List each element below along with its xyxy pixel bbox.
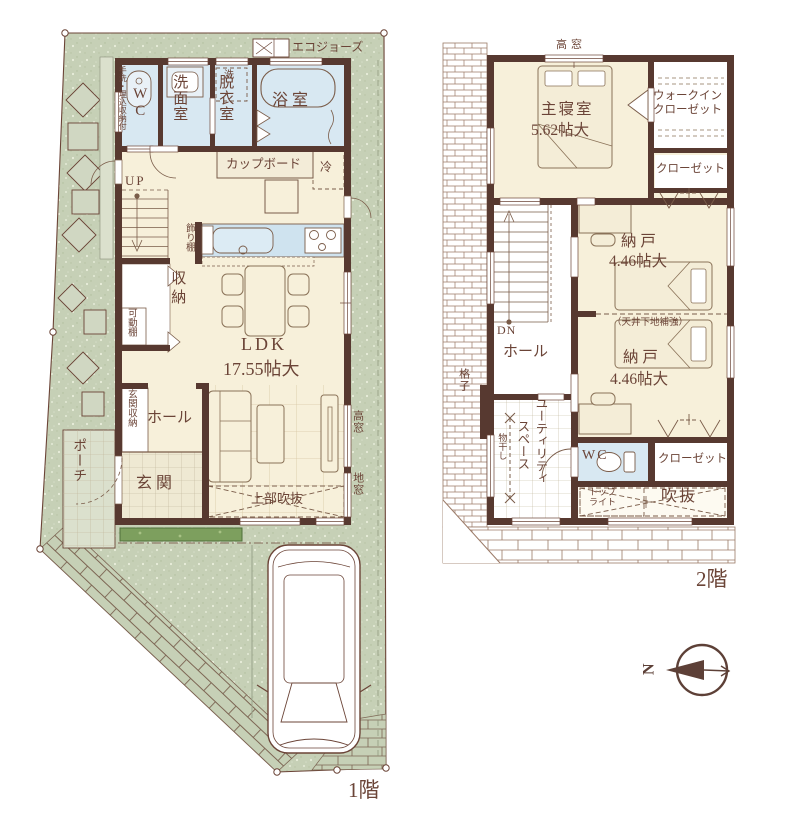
hedge xyxy=(120,528,242,541)
label-void-2f: 吹抜 xyxy=(661,488,697,506)
label-toplight-line1: トップ xyxy=(589,487,616,497)
label-nando1: 納 戸 xyxy=(621,233,656,251)
label-wic-line2: クローゼット xyxy=(653,104,722,117)
label-master: 主寝室 xyxy=(541,101,594,119)
coffee-table xyxy=(257,405,284,463)
label-jimado: 地窓 xyxy=(351,472,364,496)
car-icon xyxy=(257,545,371,753)
label-wc-note: 手洗・埋込収納付 xyxy=(118,66,127,130)
water-heater-icon xyxy=(253,39,289,57)
label-fukinuke-1f: 上部吹抜 xyxy=(251,492,303,507)
label-kazaridana: 飾り棚 xyxy=(183,223,194,252)
side-fence xyxy=(100,57,113,259)
label-porch: ポーチ xyxy=(70,438,86,483)
label-cupboard: カップボード xyxy=(226,157,301,171)
label-datsui: 脱衣室 xyxy=(216,74,233,122)
label-floor2-title: 2階 xyxy=(696,567,728,591)
label-senmen: 洗面室 xyxy=(170,74,187,122)
label-utility-line2: スペース xyxy=(515,420,529,470)
compass-icon xyxy=(666,645,729,695)
label-koshi: 格子 xyxy=(457,368,470,392)
label-bath: 浴 室 xyxy=(272,92,308,110)
label-floor1-title: 1階 xyxy=(348,778,380,802)
label-shuno: 収納 xyxy=(168,270,185,308)
label-nando2-size: 4.46帖大 xyxy=(610,371,668,389)
label-nando1-size: 4.46帖大 xyxy=(609,253,667,271)
label-takamado-1f: 高窓 xyxy=(351,410,364,434)
label-closet-lower: クローゼット xyxy=(658,453,727,466)
label-nando2: 納 戸 xyxy=(623,349,658,367)
label-wic-line1: ウォークイン xyxy=(653,90,722,103)
label-ldk-size: 17.55帖大 xyxy=(223,359,300,380)
label-fridge: 冷 xyxy=(320,161,332,175)
label-ceiling-note: （天井下地補強） xyxy=(612,318,688,329)
label-takamado-2f: 高窓 xyxy=(556,39,586,52)
label-kadodana: 可動棚 xyxy=(125,308,136,337)
label-dn: DN xyxy=(497,324,516,338)
label-closet-upper: クローゼット xyxy=(656,163,725,176)
label-master-size: 5.62帖大 xyxy=(531,122,589,140)
label-wc-2f: WC xyxy=(582,448,609,464)
floorplan-page: エコジョーズ WC 手洗・埋込収納付 洗面室 洗 脱衣室 浴 室 カップボード … xyxy=(0,0,790,830)
label-hall-2f: ホール xyxy=(503,344,548,361)
label-utility-line1: ユーティリティ xyxy=(533,397,547,485)
sofa-icon xyxy=(208,391,251,482)
tv-board xyxy=(321,395,338,472)
label-toplight-line2: ライト xyxy=(589,497,616,507)
label-wc-1f: WC xyxy=(131,86,148,120)
label-eco-jozu: エコジョーズ xyxy=(292,41,363,55)
label-genkan-shuno: 玄関収納 xyxy=(125,389,136,427)
label-monohoshi: 物干し xyxy=(497,433,507,460)
label-genkan: 玄 関 xyxy=(136,475,172,493)
label-hall-1f: ホール xyxy=(147,410,192,427)
compass-north-label: N xyxy=(641,663,659,675)
label-ldk: LDK xyxy=(241,334,287,355)
label-up: UP xyxy=(125,174,146,189)
kitchen-island xyxy=(265,180,298,213)
